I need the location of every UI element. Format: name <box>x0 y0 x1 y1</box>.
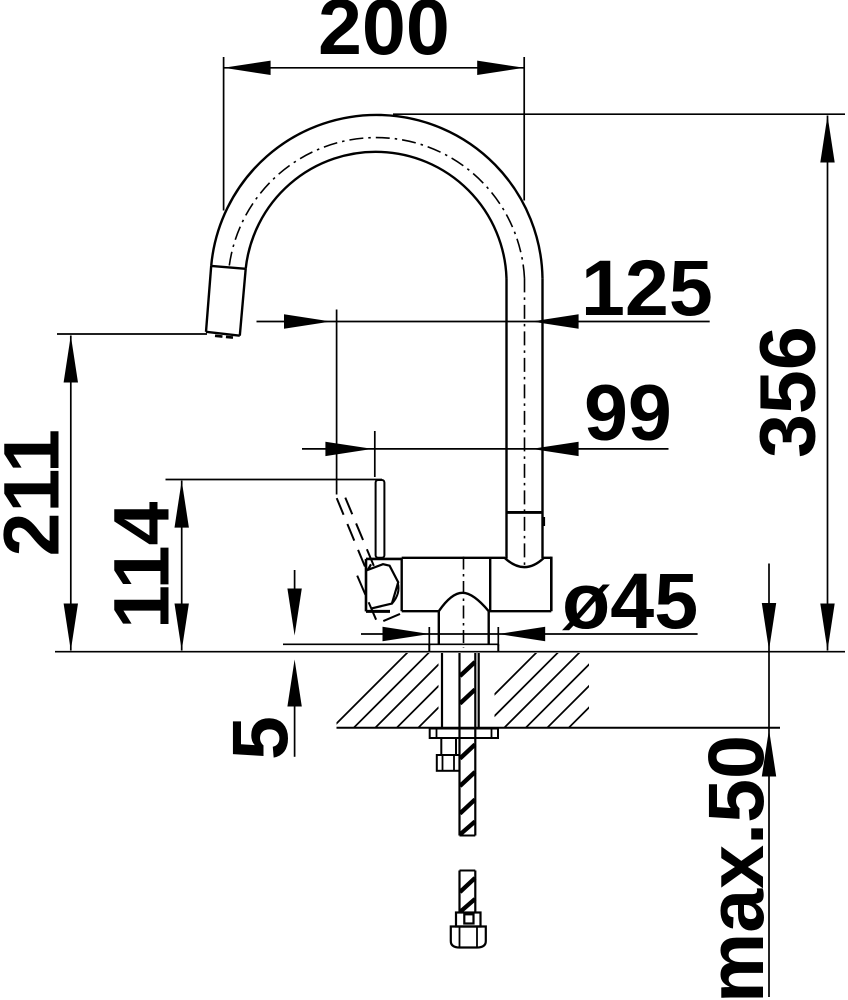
svg-text:356: 356 <box>743 326 832 458</box>
svg-text:200: 200 <box>318 0 450 71</box>
svg-text:99: 99 <box>584 368 672 457</box>
svg-text:5: 5 <box>215 716 304 760</box>
svg-text:211: 211 <box>0 429 76 556</box>
svg-text:114: 114 <box>96 501 185 629</box>
svg-text:max.50: max.50 <box>691 735 780 1000</box>
svg-text:125: 125 <box>581 243 713 332</box>
svg-text:ø45: ø45 <box>562 556 698 645</box>
